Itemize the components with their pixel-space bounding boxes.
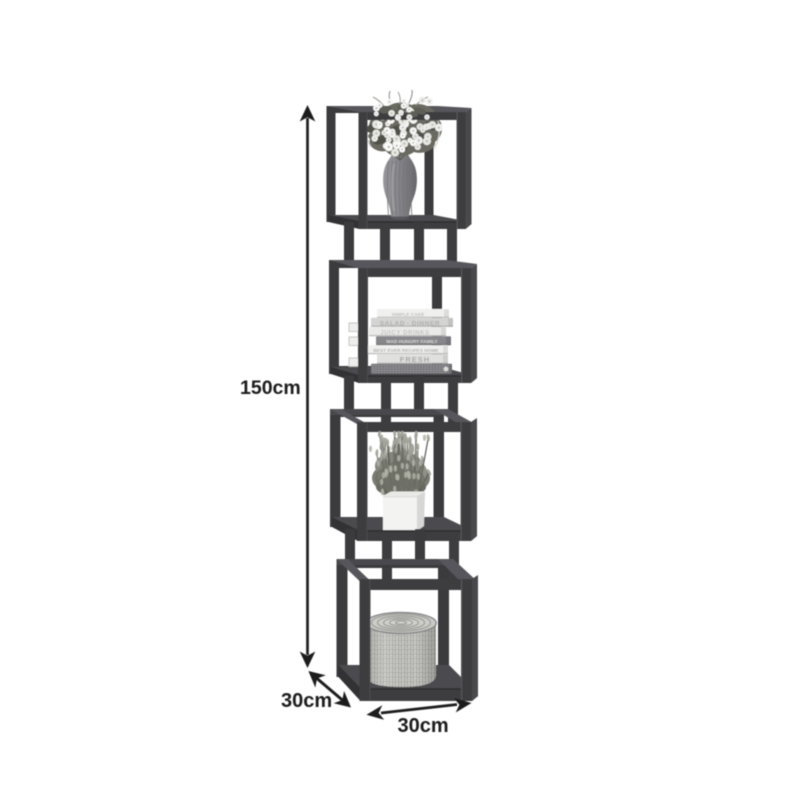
svg-text:150cm: 150cm	[240, 377, 301, 399]
svg-text:SALAD · DINNER: SALAD · DINNER	[380, 320, 440, 327]
svg-text:30cm: 30cm	[281, 690, 332, 712]
svg-text:MAD HUNGRY FAMILY: MAD HUNGRY FAMILY	[386, 339, 438, 345]
svg-text:FRESH: FRESH	[400, 355, 430, 364]
svg-text:BEST EVER RECIPES HOME: BEST EVER RECIPES HOME	[373, 348, 439, 354]
svg-text:30cm: 30cm	[398, 715, 449, 737]
svg-text:SIMPLE CAKE: SIMPLE CAKE	[392, 312, 426, 318]
svg-text:JUICY DRINKS: JUICY DRINKS	[380, 330, 429, 336]
